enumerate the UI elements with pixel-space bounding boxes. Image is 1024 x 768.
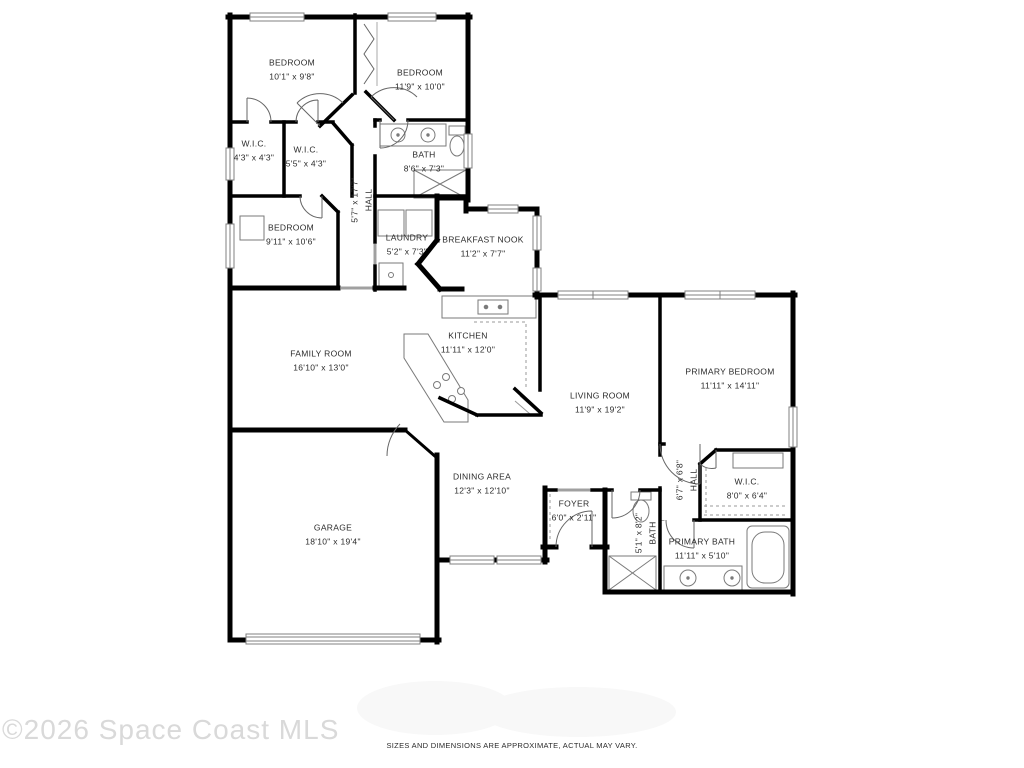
room-label-bedroom-1: BEDROOM 10'1" x 9'8" <box>269 56 315 83</box>
room-dims: 6'7" x 6'8" <box>673 460 687 500</box>
room-name: LIVING ROOM <box>570 389 630 403</box>
room-dims: 16'10" x 13'0" <box>293 361 349 375</box>
window <box>450 556 494 564</box>
door-swing <box>300 196 322 218</box>
room-dims: 12'3" x 12'10" <box>454 484 510 498</box>
room-label-hall-1: HALL 5'7" x 17'7" <box>348 177 375 223</box>
room-label-wic-2: W.I.C. 5'5" x 4'3" <box>286 143 326 170</box>
room-label-hall-2: HALL 6'7" x 6'8" <box>673 460 700 500</box>
room-dims: 5'2" x 7'3" <box>387 245 427 259</box>
room-name: PRIMARY BEDROOM <box>685 365 774 379</box>
room-label-breakfast-nook: BREAKFAST NOOK 11'2" x 7'7" <box>442 233 524 260</box>
room-name: FOYER <box>559 497 590 511</box>
window <box>250 13 304 21</box>
room-dims: 11'11" x 14'11" <box>701 379 760 393</box>
disclaimer-text: SIZES AND DIMENSIONS ARE APPROXIMATE, AC… <box>0 741 1024 750</box>
room-label-primary-wic: W.I.C. 8'0" x 6'4" <box>727 475 767 502</box>
room-label-dining-area: DINING AREA 12'3" x 12'10" <box>453 470 511 497</box>
window <box>558 291 628 299</box>
room-dims: 9'11" x 10'6" <box>266 235 316 249</box>
room-label-kitchen: KITCHEN 11'11" x 12'0" <box>441 329 495 356</box>
room-name: KITCHEN <box>448 329 487 343</box>
room-label-bedroom-3: BEDROOM 9'11" x 10'6" <box>266 221 316 248</box>
door-swing <box>296 100 318 122</box>
faded-logo-watermark <box>357 681 676 737</box>
room-label-primary-bath: PRIMARY BATH 11'11" x 5'10" <box>669 535 735 562</box>
room-dims: 11'11" x 12'0" <box>441 343 495 357</box>
floor-plan-drawing <box>0 0 1024 768</box>
room-label-wic-1: W.I.C. 4'3" x 4'3" <box>234 137 274 164</box>
room-name: BATH <box>646 521 660 544</box>
bifold-closet-door <box>364 22 377 86</box>
room-dims: 5'5" x 4'3" <box>286 157 326 171</box>
room-name: W.I.C. <box>735 475 760 489</box>
window <box>789 407 797 447</box>
room-dims: 5'7" x 17'7" <box>348 177 362 223</box>
kitchen-counter-icon <box>404 296 536 422</box>
room-name: BEDROOM <box>268 221 314 235</box>
room-name: W.I.C. <box>294 143 319 157</box>
window <box>464 134 472 168</box>
room-label-primary-bedroom: PRIMARY BEDROOM 11'11" x 14'11" <box>685 365 774 392</box>
room-name: W.I.C. <box>242 137 267 151</box>
room-name: DINING AREA <box>453 470 511 484</box>
room-name: BEDROOM <box>269 56 315 70</box>
room-name: BREAKFAST NOOK <box>442 233 524 247</box>
room-label-hall-bath: BATH 8'6" x 7'3" <box>404 148 444 175</box>
fixtures <box>240 22 789 590</box>
door-swing <box>247 98 271 122</box>
room-label-laundry: LAUNDRY 5'2" x 7'3" <box>386 231 429 258</box>
room-dims: 11'9" x 10'0" <box>395 80 445 94</box>
closet-box <box>240 216 264 240</box>
room-label-bedroom-2: BEDROOM 11'9" x 10'0" <box>395 66 445 93</box>
room-name: BEDROOM <box>397 66 443 80</box>
room-dims: 11'11" x 5'10" <box>675 549 729 563</box>
room-label-foyer: FOYER 6'0" x 2'11" <box>552 497 597 524</box>
room-name: HALL <box>687 469 701 491</box>
room-dims: 8'6" x 7'3" <box>404 162 444 176</box>
bathtub-icon <box>747 526 789 588</box>
room-name: GARAGE <box>314 521 352 535</box>
toilet-icon <box>449 126 465 156</box>
room-dims: 4'3" x 4'3" <box>234 151 274 165</box>
room-name: BATH <box>412 148 435 162</box>
room-dims: 8'0" x 6'4" <box>727 489 767 503</box>
room-label-family-room: FAMILY ROOM 16'10" x 13'0" <box>290 347 352 374</box>
window <box>533 268 541 291</box>
room-name: HALL <box>362 189 376 211</box>
window <box>226 224 234 268</box>
window <box>497 556 541 564</box>
room-dims: 11'9" x 19'2" <box>575 403 625 417</box>
garage-door <box>246 634 420 644</box>
window <box>388 13 436 21</box>
room-name: FAMILY ROOM <box>290 347 352 361</box>
floor-plan-page: BEDROOM 10'1" x 9'8" BEDROOM 11'9" x 10'… <box>0 0 1024 768</box>
window <box>685 291 755 299</box>
window <box>533 216 541 250</box>
room-dims: 11'2" x 7'7" <box>461 247 506 261</box>
room-dims: 5'1" x 8'2" <box>632 513 646 553</box>
room-dims: 10'1" x 9'8" <box>269 70 315 84</box>
room-name: LAUNDRY <box>386 231 429 245</box>
room-label-living-room: LIVING ROOM 11'9" x 19'2" <box>570 389 630 416</box>
primary-bath-vanity-icon <box>664 566 742 590</box>
window <box>488 205 518 213</box>
room-dims: 18'10" x 19'4" <box>305 535 361 549</box>
room-label-bath-2: BATH 5'1" x 8'2" <box>632 513 659 553</box>
room-dims: 6'0" x 2'11" <box>552 511 597 525</box>
room-label-garage: GARAGE 18'10" x 19'4" <box>305 521 361 548</box>
shower-icon <box>609 556 656 590</box>
hall-bath-vanity-icon <box>380 124 446 146</box>
room-name: PRIMARY BATH <box>669 535 735 549</box>
laundry-sink-icon <box>379 263 403 288</box>
